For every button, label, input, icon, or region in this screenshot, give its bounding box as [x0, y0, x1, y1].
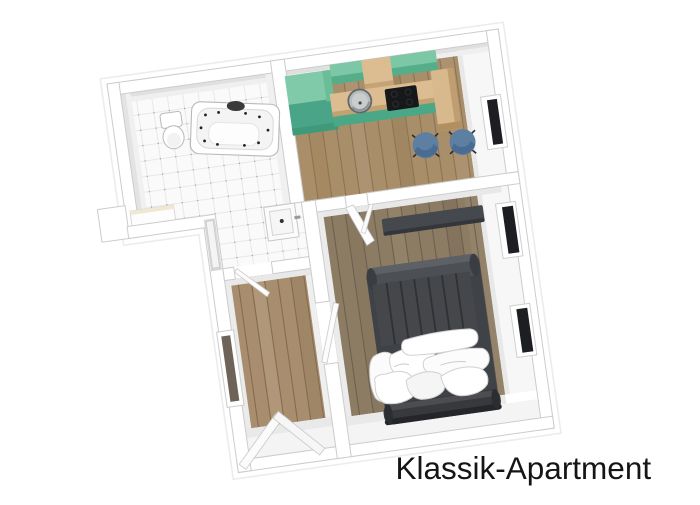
- svg-text:Klassik-Apartment: Klassik-Apartment: [396, 450, 652, 486]
